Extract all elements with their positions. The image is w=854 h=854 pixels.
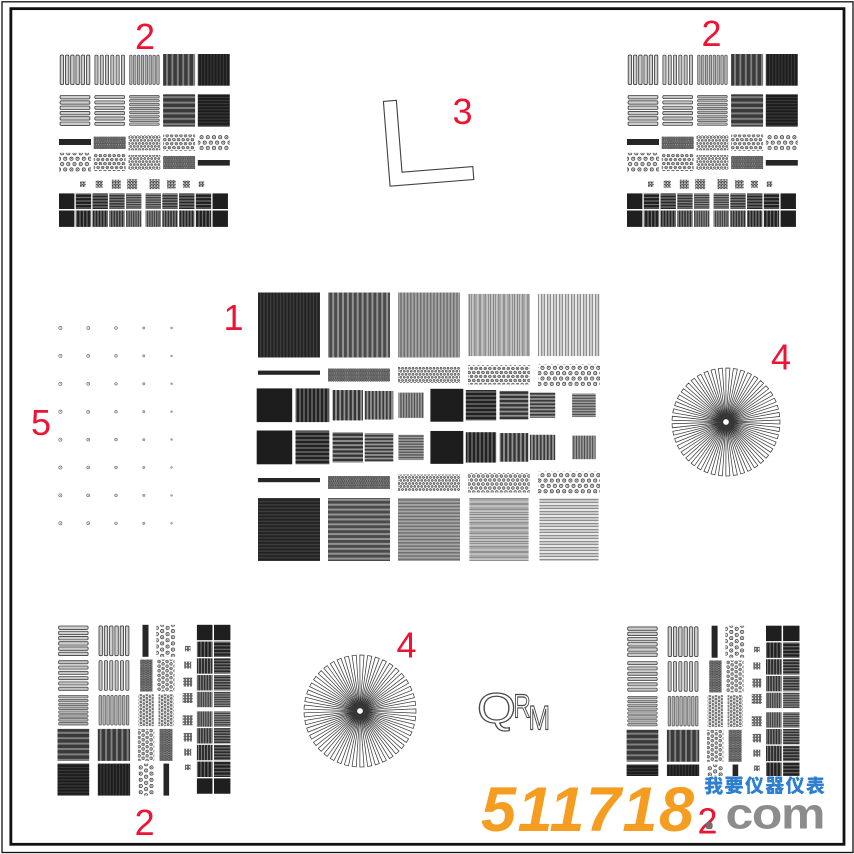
svg-text:4: 4 [397, 625, 417, 666]
svg-text:M: M [529, 699, 551, 737]
svg-text:3: 3 [453, 91, 473, 132]
svg-text:2: 2 [135, 16, 155, 57]
svg-text:1: 1 [224, 297, 244, 338]
svg-text:com: com [726, 788, 826, 838]
svg-text:5: 5 [31, 402, 51, 443]
svg-text:Q: Q [477, 685, 516, 733]
svg-text:511718: 511718 [481, 775, 694, 845]
svg-text:2: 2 [702, 13, 722, 54]
svg-text:2: 2 [135, 802, 155, 843]
svg-text:4: 4 [771, 337, 791, 378]
svg-text:2: 2 [698, 801, 718, 842]
